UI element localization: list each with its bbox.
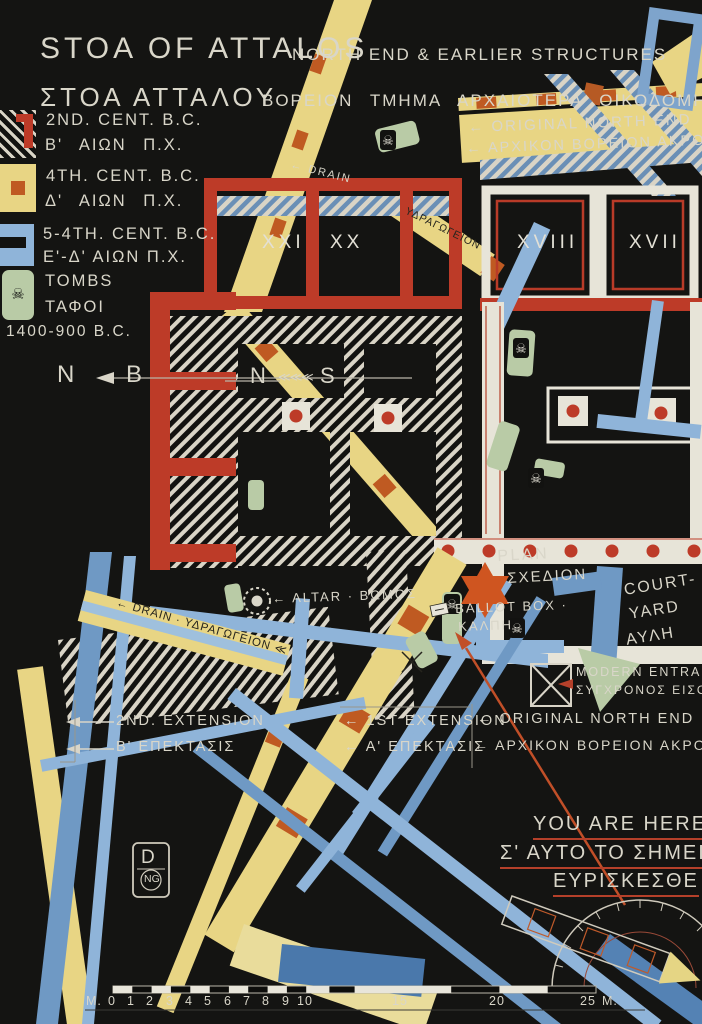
plan-label-gr: ΣΧΕΔΙΟΝ: [507, 567, 588, 586]
you-are-here-gr2: ΕΥΡΙΣΚΕΣΘΕ: [553, 871, 699, 897]
ballot-box-label-gr: ΚΑΛΠΗ: [458, 618, 513, 633]
poster-subtitle-gr: ΒΟΡΕΙΟΝ ΤΜΗΜΑ ΑΡΧΑΙΟΤΕΡΑ ΟΙΚΟΔΟΜΗΜΑΤΑ: [262, 92, 702, 109]
scale-label: 20: [489, 994, 505, 1008]
legend-item-label: 4TH. CENT. B.C.: [46, 168, 201, 185]
second-extension-label-gr: Β' ΕΠΕΚΤΑΣΙΣ: [116, 740, 235, 755]
svg-text:☠: ☠: [515, 341, 527, 356]
entrance-arrow-icon: [558, 679, 573, 689]
scale-label: 6: [224, 994, 232, 1008]
first-extension-label-gr: ← Α' ΕΠΕΚΤΑΣΙΣ: [344, 740, 485, 755]
plan-label-en: PLAN: [497, 546, 550, 565]
poster-subtitle-en: NORTH END & EARLIER STRUCTURES: [292, 46, 667, 63]
legend-swatch-yellow: [0, 164, 36, 212]
compass-north-label-greek: B: [126, 363, 144, 387]
legend-item-label: 2ND. CENT. B.C.: [46, 112, 203, 129]
skull-icon: ☠: [528, 468, 544, 488]
compass-north-label: N: [57, 363, 76, 387]
scale-label: 10: [297, 994, 313, 1008]
you-are-here-en: YOU ARE HERE: [533, 814, 702, 840]
legend-item-label: Δ' ΑΙΩΝ Π.Χ.: [45, 193, 183, 210]
scale-label: 1: [127, 994, 135, 1008]
legend-item-label: TOMBS: [45, 273, 113, 290]
second-extension-label-en: 2ND. EXTENSION: [116, 714, 265, 729]
legend-swatch-tomb: ☠: [2, 270, 34, 320]
scale-label: 7: [243, 994, 251, 1008]
room-number: XXI: [262, 233, 305, 252]
scale-label: 15: [392, 994, 408, 1008]
modern-entrance-label-gr: ΣΥΓΧΡΟΝΟΣ ΕΙΣΟΔΟΣ: [576, 684, 702, 696]
scale-label: 8: [262, 994, 270, 1008]
scale-label: M.: [602, 994, 618, 1008]
svg-text:☠: ☠: [530, 471, 542, 486]
original-north-end-label-gr: ← ΑΡΧΙΚΟΝ ΒΟΡΕΙΟΝ ΑΚΡΟΝ: [474, 738, 702, 752]
room-number: XVIII: [517, 233, 578, 252]
scale-label: 4: [185, 994, 193, 1008]
legend-item-label: Ε'-Δ' ΑΙΩΝ Π.Χ.: [43, 249, 187, 266]
altar-icon: [244, 588, 270, 614]
legend-item-label: Β' ΑΙΩΝ Π.Χ.: [45, 137, 183, 154]
legend-item-label: 5-4TH. CENT. B.C.: [43, 226, 216, 243]
mid-compass-chevrons: ≪≪≪: [278, 371, 313, 383]
scale-label: 9: [282, 994, 290, 1008]
skull-icon: ☠: [380, 130, 396, 150]
original-north-end-label-en: ← ORIGINAL NORTH END: [477, 712, 694, 727]
scale-label: 0: [108, 994, 116, 1008]
ballot-box-label-en: BALLOT BOX ·: [455, 598, 568, 615]
legend-item-label: ΤΑΦΟΙ: [45, 299, 105, 316]
you-are-here-gr1: Σ' ΑΥΤΟ ΤΟ ΣΗΜΕΙΟ: [500, 843, 702, 869]
poster-title-gr: ΣΤΟΑ ΑΤΤΑΛΟΥ: [40, 84, 277, 110]
modern-entrance-label-en: MODERN ENTRANCE: [576, 666, 702, 679]
scale-label: 3: [166, 994, 174, 1008]
scale-label: 5: [204, 994, 212, 1008]
site-plan-poster: ☠ ☠ ☠ ☠ ☠: [0, 0, 702, 1024]
room-number: XVII: [629, 233, 681, 252]
scale-label: 2: [146, 994, 154, 1008]
scale-label: M.: [86, 994, 102, 1008]
legend-tomb-dates: 1400-900 B.C.: [6, 324, 132, 340]
svg-text:☠: ☠: [382, 133, 394, 148]
mid-compass-s: S: [320, 365, 337, 387]
skull-icon: ☠: [11, 286, 24, 303]
scale-label: 25: [580, 994, 596, 1008]
monogram-letter-bottom: NG: [144, 874, 160, 885]
legend-swatch-blue: [0, 224, 34, 266]
legend-swatch-hatched: [0, 110, 36, 158]
monogram-letter-top: D: [141, 848, 157, 867]
room-number: XX: [330, 233, 363, 252]
mid-compass-n: N: [250, 365, 268, 387]
skull-icon: ☠: [513, 338, 529, 358]
